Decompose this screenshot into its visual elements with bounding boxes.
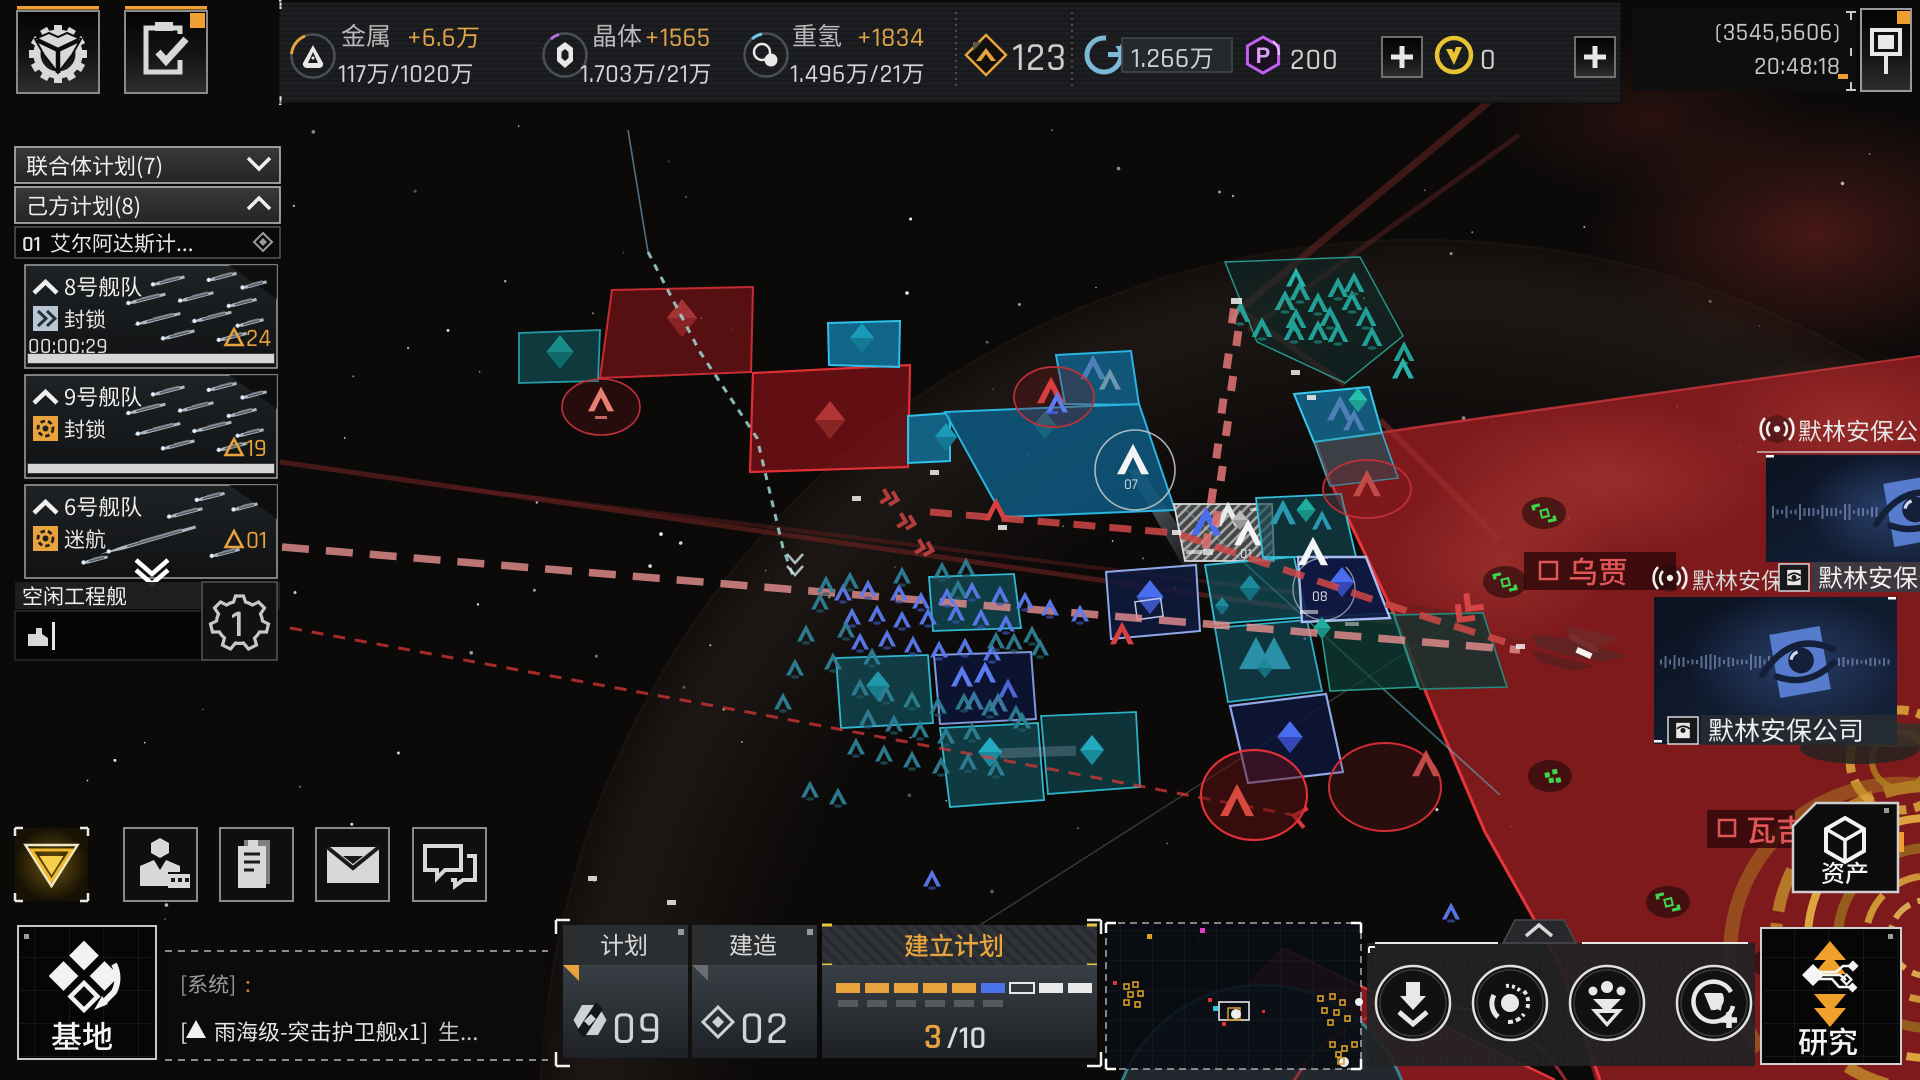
svg-text:P: P [1256,43,1271,68]
